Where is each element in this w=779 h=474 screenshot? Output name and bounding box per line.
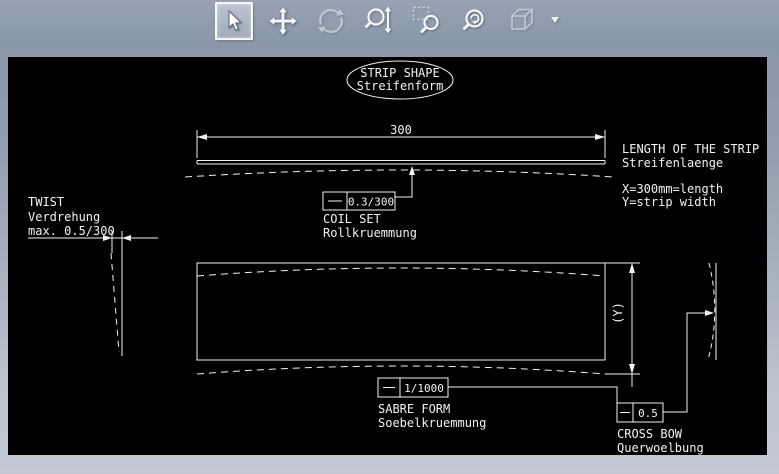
twist-label-en: TWIST [28, 195, 64, 209]
sabre-form-tolerance: 1/1000 [404, 382, 444, 395]
title-bubble: STRIP SHAPE Streifenform [347, 61, 453, 99]
coil-set-callout: 0.3/300 COIL SET Rollkruemmung [323, 166, 417, 240]
zoom-circle-button[interactable] [458, 4, 492, 38]
sabre-form-frame: 1/1000 [378, 378, 448, 397]
length-note: LENGTH OF THE STRIP Streifenlaenge X=300… [622, 142, 759, 209]
coil-set-label-en: COIL SET [323, 212, 381, 226]
title-line-de: Streifenform [357, 79, 444, 93]
twist-max-label: max. 0.5/300 [28, 224, 115, 238]
twist-note: TWIST Verdrehung max. 0.5/300 [28, 195, 115, 238]
navigation-toolbar [0, 0, 779, 50]
twist-figure [28, 231, 158, 356]
length-dimension-value: 300 [390, 123, 412, 137]
coil-set-tolerance: 0.3/300 [348, 196, 394, 209]
zoom-vertical-icon [364, 6, 394, 36]
zoom-circle-icon [461, 7, 489, 35]
cross-bow-frame: 0.5 [617, 403, 663, 422]
coil-set-curve [185, 170, 613, 177]
title-line-en: STRIP SHAPE [360, 66, 439, 80]
select-button[interactable] [215, 2, 253, 40]
length-dimension: 300 [197, 123, 605, 158]
twist-label-de: Verdrehung [28, 210, 100, 224]
width-dimension-value: (Y) [611, 302, 625, 324]
zoom-vertical-button[interactable] [362, 4, 396, 38]
cube-icon [507, 7, 537, 35]
zoom-window-button[interactable] [410, 4, 444, 38]
sabre-curve-bottom [197, 366, 605, 374]
sabre-form-label-en: SABRE FORM [378, 402, 450, 416]
views-cube-button[interactable] [505, 4, 539, 38]
drawing-canvas[interactable]: STRIP SHAPE Streifenform 300 0.3/300 COI… [8, 57, 767, 455]
width-dimension: (Y) [605, 263, 640, 387]
length-note-line4: Y=strip width [622, 195, 716, 209]
cross-bow-tolerance: 0.5 [638, 407, 658, 420]
sabre-form-callout: 1/1000 SABRE FORM Soebelkruemmung [378, 378, 617, 430]
sabre-form-label-de: Soebelkruemmung [378, 416, 486, 430]
zoom-window-icon [412, 6, 442, 36]
strip-side-view [185, 161, 613, 178]
length-note-line3: X=300mm=length [622, 182, 723, 196]
length-note-line1: LENGTH OF THE STRIP [622, 142, 759, 156]
coil-set-frame: 0.3/300 [323, 192, 395, 210]
cross-bow-label-de: Querwoelbung [617, 441, 704, 455]
dropdown-arrow-icon[interactable] [551, 17, 559, 23]
cross-bow-label-en: CROSS BOW [617, 427, 683, 441]
pan-icon [268, 6, 298, 36]
length-note-line2: Streifenlaenge [622, 156, 723, 170]
coil-set-label-de: Rollkruemmung [323, 226, 417, 240]
orbit-icon [317, 7, 345, 35]
orbit-button[interactable] [314, 4, 348, 38]
cursor-arrow-icon [224, 10, 244, 32]
strip-plan-view [197, 263, 605, 374]
pan-button[interactable] [266, 4, 300, 38]
